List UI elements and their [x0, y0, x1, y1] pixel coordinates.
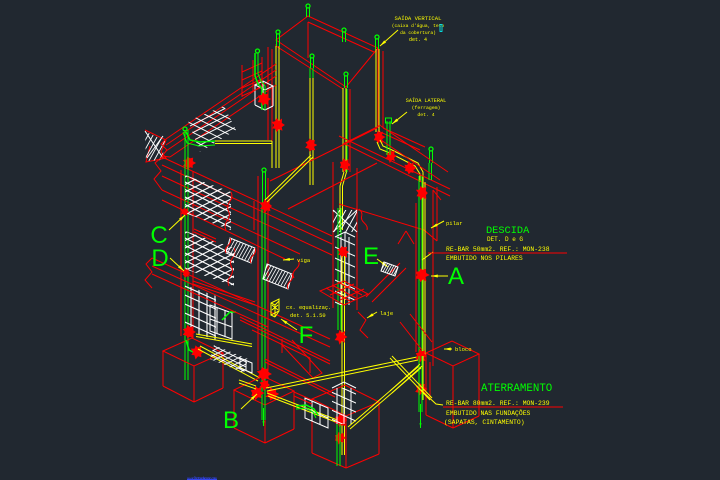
svg-text:E: E — [363, 243, 379, 270]
svg-text:SAÍDA LATERAL: SAÍDA LATERAL — [406, 97, 446, 104]
svg-text:da cobertura): da cobertura) — [400, 30, 436, 36]
svg-text:cx. equalizaç.: cx. equalizaç. — [286, 305, 331, 311]
svg-text:RE-BAR 50mm2. REF.: MON-238: RE-BAR 50mm2. REF.: MON-238 — [446, 246, 550, 253]
svg-text:B: B — [223, 407, 239, 434]
svg-text:D: D — [151, 245, 168, 272]
svg-text:(SAPATAS, CINTAMENTO): (SAPATAS, CINTAMENTO) — [444, 419, 525, 426]
svg-text:ATERRAMENTO: ATERRAMENTO — [481, 383, 552, 395]
svg-text:pilar: pilar — [446, 220, 463, 227]
svg-text:F: F — [299, 322, 314, 349]
svg-text:SAÍDA VERTICAL: SAÍDA VERTICAL — [395, 15, 442, 22]
svg-text:det. 5.1.50: det. 5.1.50 — [290, 313, 326, 319]
svg-text:EMBUTIDO NAS FUNDAÇÕES: EMBUTIDO NAS FUNDAÇÕES — [446, 409, 531, 417]
svg-text:(caixa d'água, teto: (caixa d'água, teto — [392, 23, 445, 29]
svg-text:viga: viga — [297, 257, 311, 264]
svg-text:det. 4: det. 4 — [417, 112, 434, 118]
svg-text:A: A — [448, 263, 464, 290]
svg-text:det. 4: det. 4 — [409, 37, 427, 43]
svg-text:laje: laje — [380, 310, 393, 317]
svg-text:RE-BAR 80mm2. REF.: MON-239: RE-BAR 80mm2. REF.: MON-239 — [446, 400, 550, 407]
svg-text:EMBUTIDO NOS PILARES: EMBUTIDO NOS PILARES — [446, 255, 523, 262]
svg-text:bloco: bloco — [455, 346, 472, 353]
svg-text:(ferragem): (ferragem) — [412, 105, 441, 111]
svg-text:DET. D e G: DET. D e G — [487, 236, 523, 243]
